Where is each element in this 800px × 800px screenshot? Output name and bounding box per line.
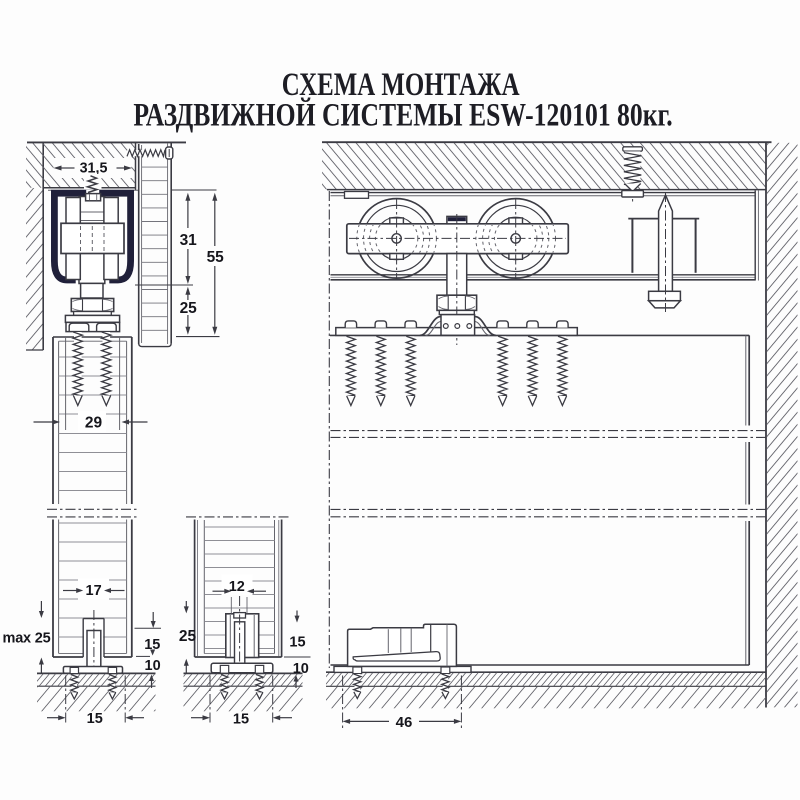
svg-text:12: 12: [229, 579, 245, 595]
svg-text:25: 25: [180, 300, 198, 317]
svg-text:max 25: max 25: [3, 631, 51, 647]
svg-text:РАЗДВИЖНОЙ СИСТЕМЫ ESW-120101: РАЗДВИЖНОЙ СИСТЕМЫ ESW-120101 80кг.: [133, 96, 672, 133]
svg-text:17: 17: [86, 583, 102, 599]
svg-text:15: 15: [233, 712, 249, 728]
svg-text:46: 46: [396, 714, 413, 731]
svg-text:15: 15: [289, 634, 305, 650]
svg-text:10: 10: [293, 661, 309, 677]
svg-text:15: 15: [87, 711, 103, 727]
svg-text:55: 55: [207, 249, 225, 266]
svg-text:29: 29: [85, 414, 103, 431]
svg-text:31: 31: [180, 232, 198, 249]
svg-text:25: 25: [179, 628, 197, 645]
svg-text:10: 10: [145, 658, 161, 674]
